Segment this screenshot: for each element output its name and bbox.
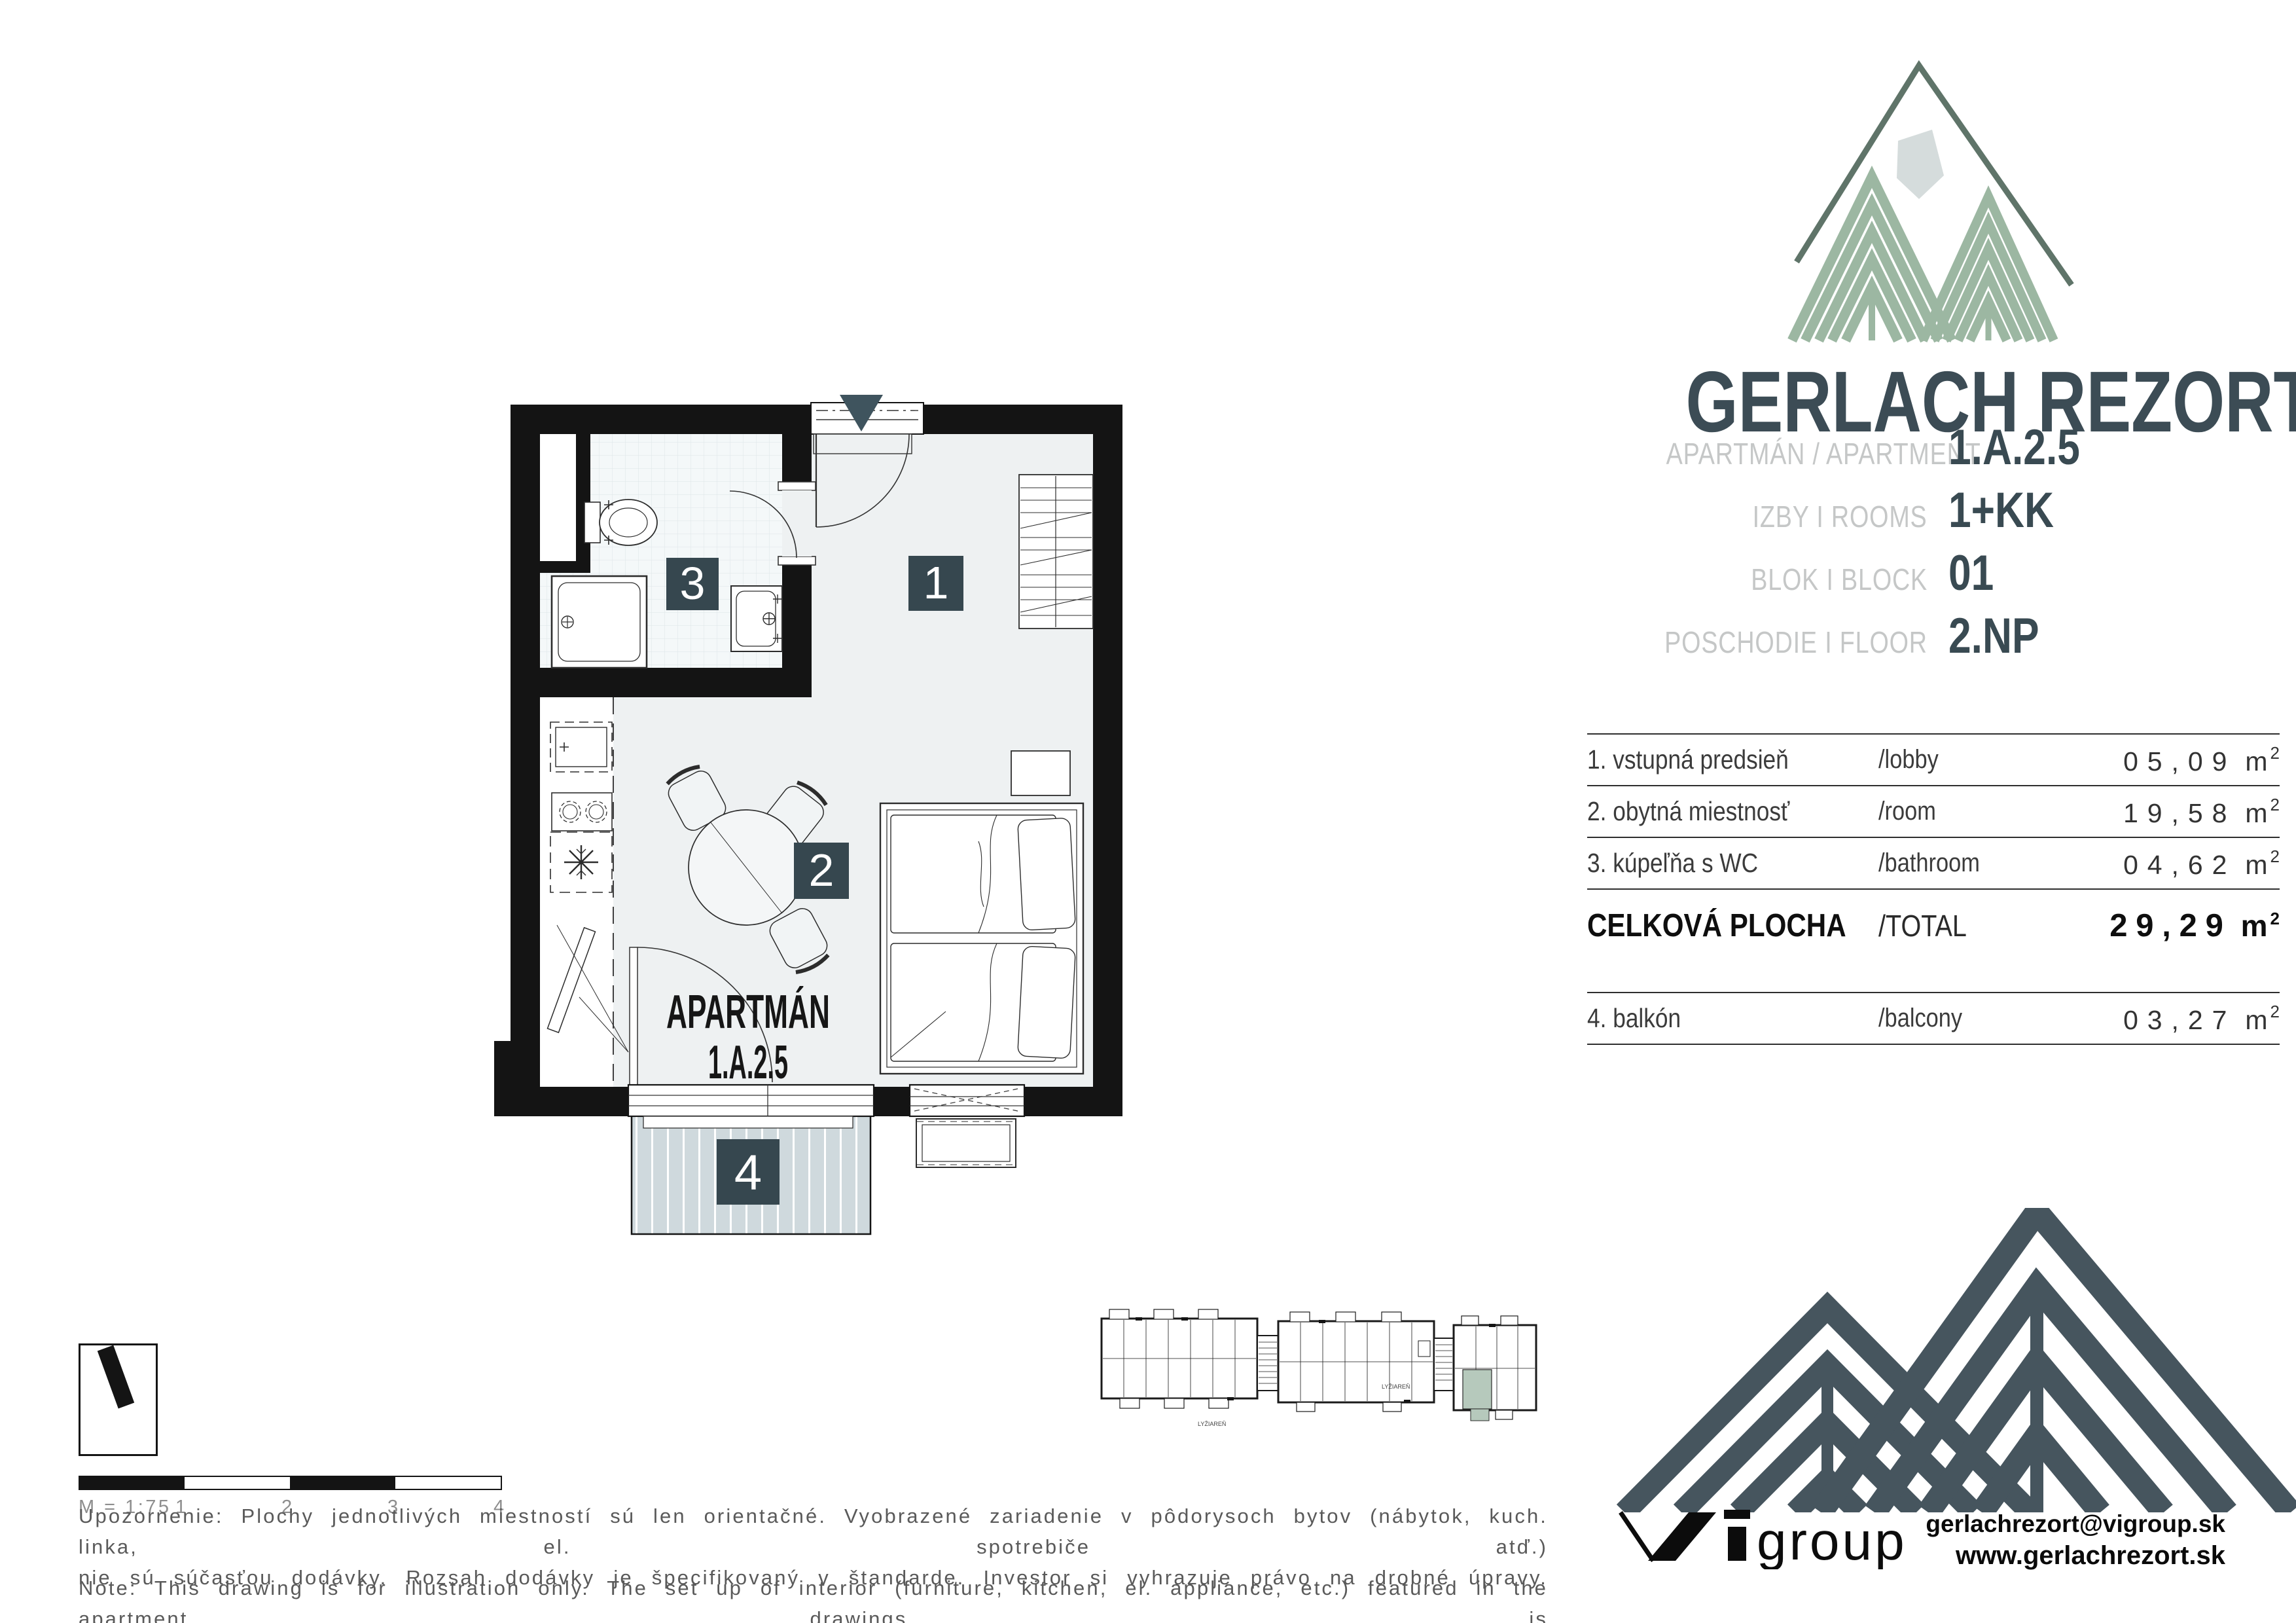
contact-email: gerlachrezort@vigroup.sk xyxy=(1898,1508,2225,1540)
tree-left-icon xyxy=(1792,177,1952,340)
disclaimer-en-line1: Note: This drawing is for illustration o… xyxy=(79,1573,1548,1623)
table-row-room: 2. obytná miestnosť /room 19,58 m2 xyxy=(1587,785,2280,837)
side-table-icon xyxy=(1011,751,1070,795)
floor-plan: 1 3 2 4 APARTMÁN 1.A.2.5 xyxy=(494,390,1142,1247)
info-label: POSCHODIE I FLOOR xyxy=(1597,625,1928,660)
shaft-niche xyxy=(540,434,576,565)
room-name-en: /balcony xyxy=(1878,1004,1962,1033)
room-area: 03,27 xyxy=(2123,1005,2236,1036)
info-row-rooms: IZBY I ROOMS 1+KK xyxy=(1597,482,2281,545)
room-area: 05,09 xyxy=(2123,746,2236,777)
badge-room-3-number: 3 xyxy=(680,558,706,609)
brand-logo-icon xyxy=(1682,39,2206,354)
plan-title-line1: APARTMÁN xyxy=(666,986,830,1038)
vigroup-i-stem-icon xyxy=(1728,1527,1746,1561)
building-overview-map: LYŽIAREŇ LYŽIAREŇ xyxy=(1096,1302,1541,1432)
plan-title-line2: 1.A.2.5 xyxy=(708,1036,788,1089)
room-name: 4. balkón xyxy=(1587,1003,1681,1034)
info-value: 1.A.2.5 xyxy=(1948,419,2109,476)
table-spacer xyxy=(1587,962,2280,992)
contact-website: www.gerlachrezort.sk xyxy=(1898,1540,2225,1571)
window-bench-icon xyxy=(916,1119,1016,1167)
info-row-apartment: APARTMÁN / APARTMENT 1.A.2.5 xyxy=(1597,419,2281,482)
cooktop-icon xyxy=(552,793,612,831)
info-row-block: BLOK I BLOCK 01 xyxy=(1597,545,2281,608)
info-row-floor: POSCHODIE I FLOOR 2.NP xyxy=(1597,608,2281,670)
info-value: 01 xyxy=(1948,545,2004,602)
room-name: 2. obytná miestnosť xyxy=(1587,796,1789,827)
wardrobe-icon xyxy=(1019,475,1093,629)
vigroup-group-text: group xyxy=(1757,1512,1907,1569)
toilet-icon xyxy=(584,500,657,545)
vigroup-i-bar-icon xyxy=(1724,1510,1750,1519)
scale-bar xyxy=(79,1476,503,1491)
room-name: 1. vstupná predsieň xyxy=(1587,744,1789,775)
north-indicator xyxy=(79,1343,158,1456)
table-row-total: CELKOVÁ PLOCHA /TOTAL 29,29 m2 xyxy=(1587,888,2280,962)
apartment-info: APARTMÁN / APARTMENT 1.A.2.5 IZBY I ROOM… xyxy=(1597,419,2281,670)
vigroup-logo: group xyxy=(1611,1501,1919,1569)
mountain-left-icon xyxy=(1624,1307,2030,1512)
total-label: CELKOVÁ PLOCHA xyxy=(1587,907,1846,944)
highlighted-unit xyxy=(1463,1370,1492,1409)
vigroup-v-thin-icon xyxy=(1621,1512,1653,1561)
badge-room-1-number: 1 xyxy=(924,557,949,608)
disclaimer-sk-line1: Upozornenie: Plochy jednotlivých miestno… xyxy=(79,1501,1548,1562)
badge-room-2-number: 2 xyxy=(809,845,834,896)
north-needle-icon xyxy=(105,1348,126,1406)
highlighted-unit-balcony xyxy=(1471,1409,1489,1421)
floorplan-sheet: GERLACH REZORT APARTMÁN / APARTMENT 1.A.… xyxy=(0,0,2296,1623)
area-table: 1. vstupná predsieň /lobby 05,09 m2 2. o… xyxy=(1587,733,2280,1045)
room-name: 3. kúpeľňa s WC xyxy=(1587,848,1758,879)
kitchen-sink-icon xyxy=(550,722,612,772)
info-label: IZBY I ROOMS xyxy=(1597,499,1928,534)
room-area: 19,58 xyxy=(2123,798,2236,829)
minimap-label-left: LYŽIAREŇ xyxy=(1198,1421,1226,1427)
bathroom-sink-icon xyxy=(731,586,782,651)
info-value: 2.NP xyxy=(1948,608,2059,665)
shower-icon xyxy=(552,576,647,668)
contact-info: gerlachrezort@vigroup.sk www.gerlachrezo… xyxy=(1898,1508,2225,1571)
room-name-en: /room xyxy=(1878,797,1936,826)
disclaimer-en: Note: This drawing is for illustration o… xyxy=(79,1573,1548,1623)
badge-room-4-number: 4 xyxy=(734,1145,762,1201)
minimap-label-right: LYŽIAREŇ xyxy=(1382,1383,1410,1390)
room-area: 04,62 xyxy=(2123,850,2236,881)
info-label: APARTMÁN / APARTMENT xyxy=(1597,436,1928,471)
snow-patch-icon xyxy=(1897,130,1944,199)
total-area: 29,29 xyxy=(2109,907,2231,944)
table-row-lobby: 1. vstupná predsieň /lobby 05,09 m2 xyxy=(1587,733,2280,785)
vigroup-v-bold-icon xyxy=(1648,1512,1716,1561)
info-value: 1+KK xyxy=(1948,482,2077,539)
room-name-en: /bathroom xyxy=(1878,848,1980,878)
room-name-en: /lobby xyxy=(1878,745,1939,775)
fridge-icon xyxy=(550,832,612,892)
table-row-balcony: 4. balkón /balcony 03,27 m2 xyxy=(1587,992,2280,1045)
info-label: BLOK I BLOCK xyxy=(1597,562,1928,597)
window xyxy=(910,1085,1024,1116)
table-row-bathroom: 3. kúpeľňa s WC /bathroom 04,62 m2 xyxy=(1587,837,2280,888)
tree-right-icon xyxy=(1923,196,2054,340)
total-label-en: /TOTAL xyxy=(1878,908,1967,943)
mountains-logo-icon xyxy=(1610,1208,2296,1512)
